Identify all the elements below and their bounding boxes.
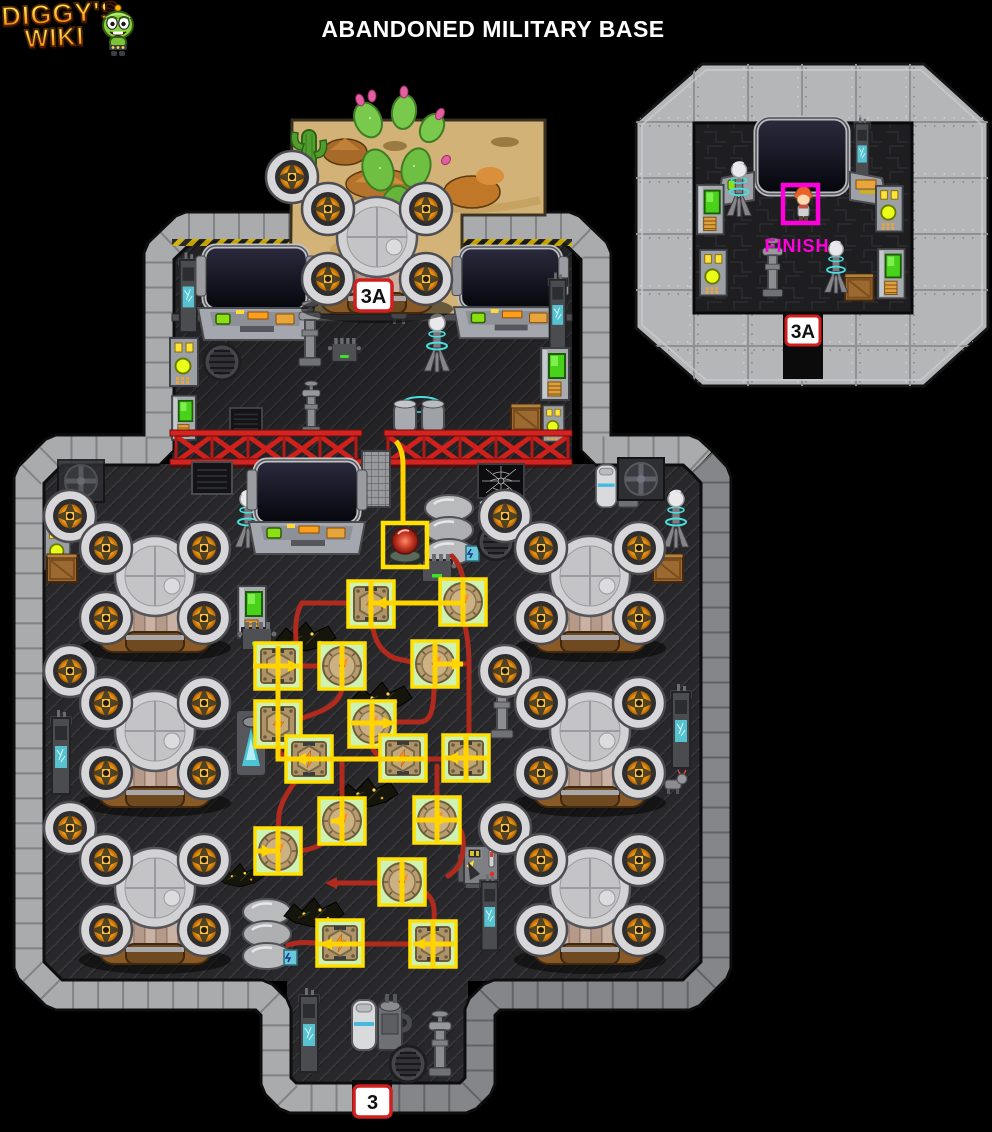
page-title: ABANDONED MILITARY BASE [283,16,703,43]
exit-marker-3: 3 [354,1086,391,1117]
machine-pillar [548,273,568,349]
inset-exit-marker-3a: 3A [786,316,820,345]
machine-cabinet-lights [170,338,198,386]
machine-panel [192,462,232,494]
vent-grille [204,344,240,380]
monitor-console [247,460,367,554]
wooden-crate [511,404,541,432]
wooden-crate [845,274,874,301]
exit-label: 3A [361,286,387,308]
exit-marker-3a: 3A [355,280,392,311]
machine-pillar [670,684,692,768]
finish-label: FINISH [764,236,829,256]
logo-text-line2: WIKI [2,24,107,52]
site-logo: DIGGY'S WIKI [1,0,107,53]
wall-fan [618,458,664,500]
exit-label: 3 [367,1092,378,1114]
machine-cabinet-screen [541,348,569,400]
machine-pillar [298,988,320,1072]
machine-pillar [480,875,500,951]
exit-label: 3A [791,322,816,343]
machine-cabinet-lights [876,186,903,232]
diggy-alien-mascot-icon [96,4,140,58]
machine-cabinet-screen [878,249,905,298]
vent-grille [390,1046,426,1082]
machine-cabinet-lights [700,250,727,296]
machine-cabinet-screen [697,185,724,234]
inset-map: FINISH 3A [630,58,992,390]
wooden-crate [47,554,77,582]
monitor-console [196,246,316,340]
machine-pillar [50,710,72,794]
